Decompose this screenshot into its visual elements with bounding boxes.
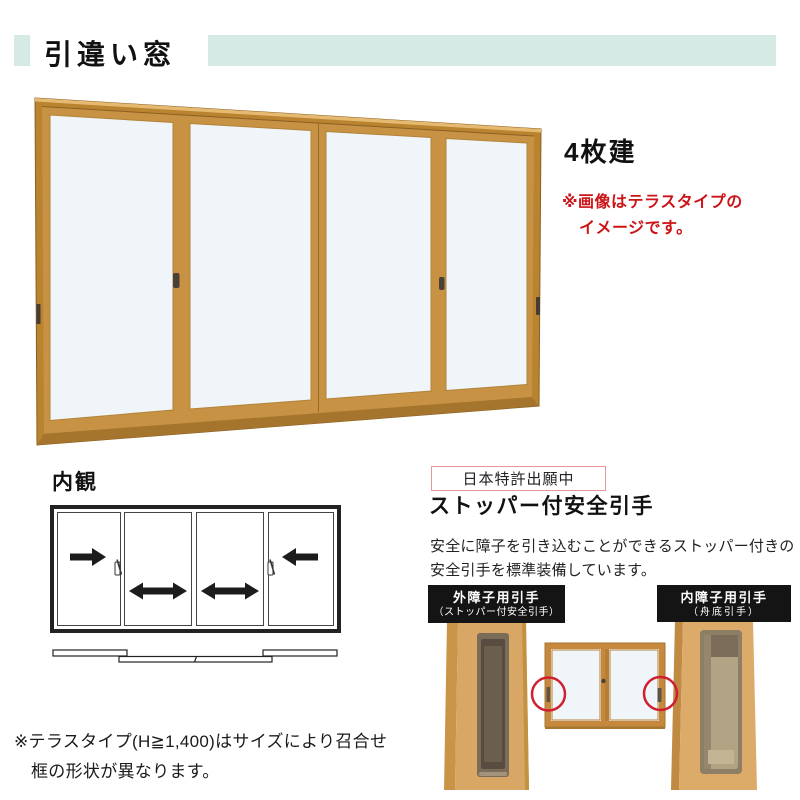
sash-handle-right-icon bbox=[439, 277, 445, 290]
track-plan-view bbox=[53, 650, 337, 662]
outer-handle-label-line2: （ストッパー付安全引手） bbox=[434, 606, 560, 619]
mini-left-handle-icon bbox=[547, 687, 551, 702]
frame-latch-right-icon bbox=[536, 297, 540, 315]
inner-handle-label-line2: （舟底引手） bbox=[688, 606, 760, 619]
inner-handle-label: 内障子用引手 （舟底引手） bbox=[657, 585, 791, 622]
outer-handle-label-line1: 外障子用引手 bbox=[453, 589, 540, 606]
sash-handle-left-icon bbox=[173, 273, 180, 288]
inner-handle-label-line1: 内障子用引手 bbox=[680, 589, 767, 606]
mini-crescent-lock-icon bbox=[601, 679, 605, 683]
feature-desc-line2: 安全引手を標準装備しています。 bbox=[430, 559, 656, 580]
mini-window-illustration bbox=[532, 643, 677, 729]
outer-handle-label: 外障子用引手 （ストッパー付安全引手） bbox=[428, 585, 565, 623]
patent-pending-badge: 日本特許出願中 bbox=[431, 466, 606, 491]
title-accent-square bbox=[14, 35, 30, 66]
hero-note-line2: イメージです。 bbox=[579, 214, 693, 238]
page-title: 引違い窓 bbox=[44, 33, 176, 73]
inner-handle-photo bbox=[671, 620, 757, 790]
sliding-window-illustration bbox=[25, 90, 555, 455]
title-accent-band bbox=[208, 35, 776, 66]
product-info-sheet: 引違い窓 4枚建 ※画像はテラスタイプの イメージです。 内観 bbox=[0, 0, 800, 800]
footnote-line2: 框の形状が異なります。 bbox=[31, 757, 220, 782]
hero-note-line1: ※画像はテラスタイプの bbox=[562, 188, 743, 212]
interior-view-diagram bbox=[30, 460, 390, 680]
panel-count-label: 4枚建 bbox=[564, 132, 636, 169]
frame-latch-left-icon bbox=[37, 304, 41, 324]
feature-title: ストッパー付安全引手 bbox=[429, 490, 654, 520]
outer-handle-photo bbox=[444, 622, 529, 790]
mini-right-handle-icon bbox=[658, 688, 662, 702]
feature-desc-line1: 安全に障子を引き込むことができるストッパー付きの bbox=[430, 535, 795, 556]
footnote-line1: ※テラスタイプ(H≧1,400)はサイズにより召合せ bbox=[14, 727, 387, 752]
